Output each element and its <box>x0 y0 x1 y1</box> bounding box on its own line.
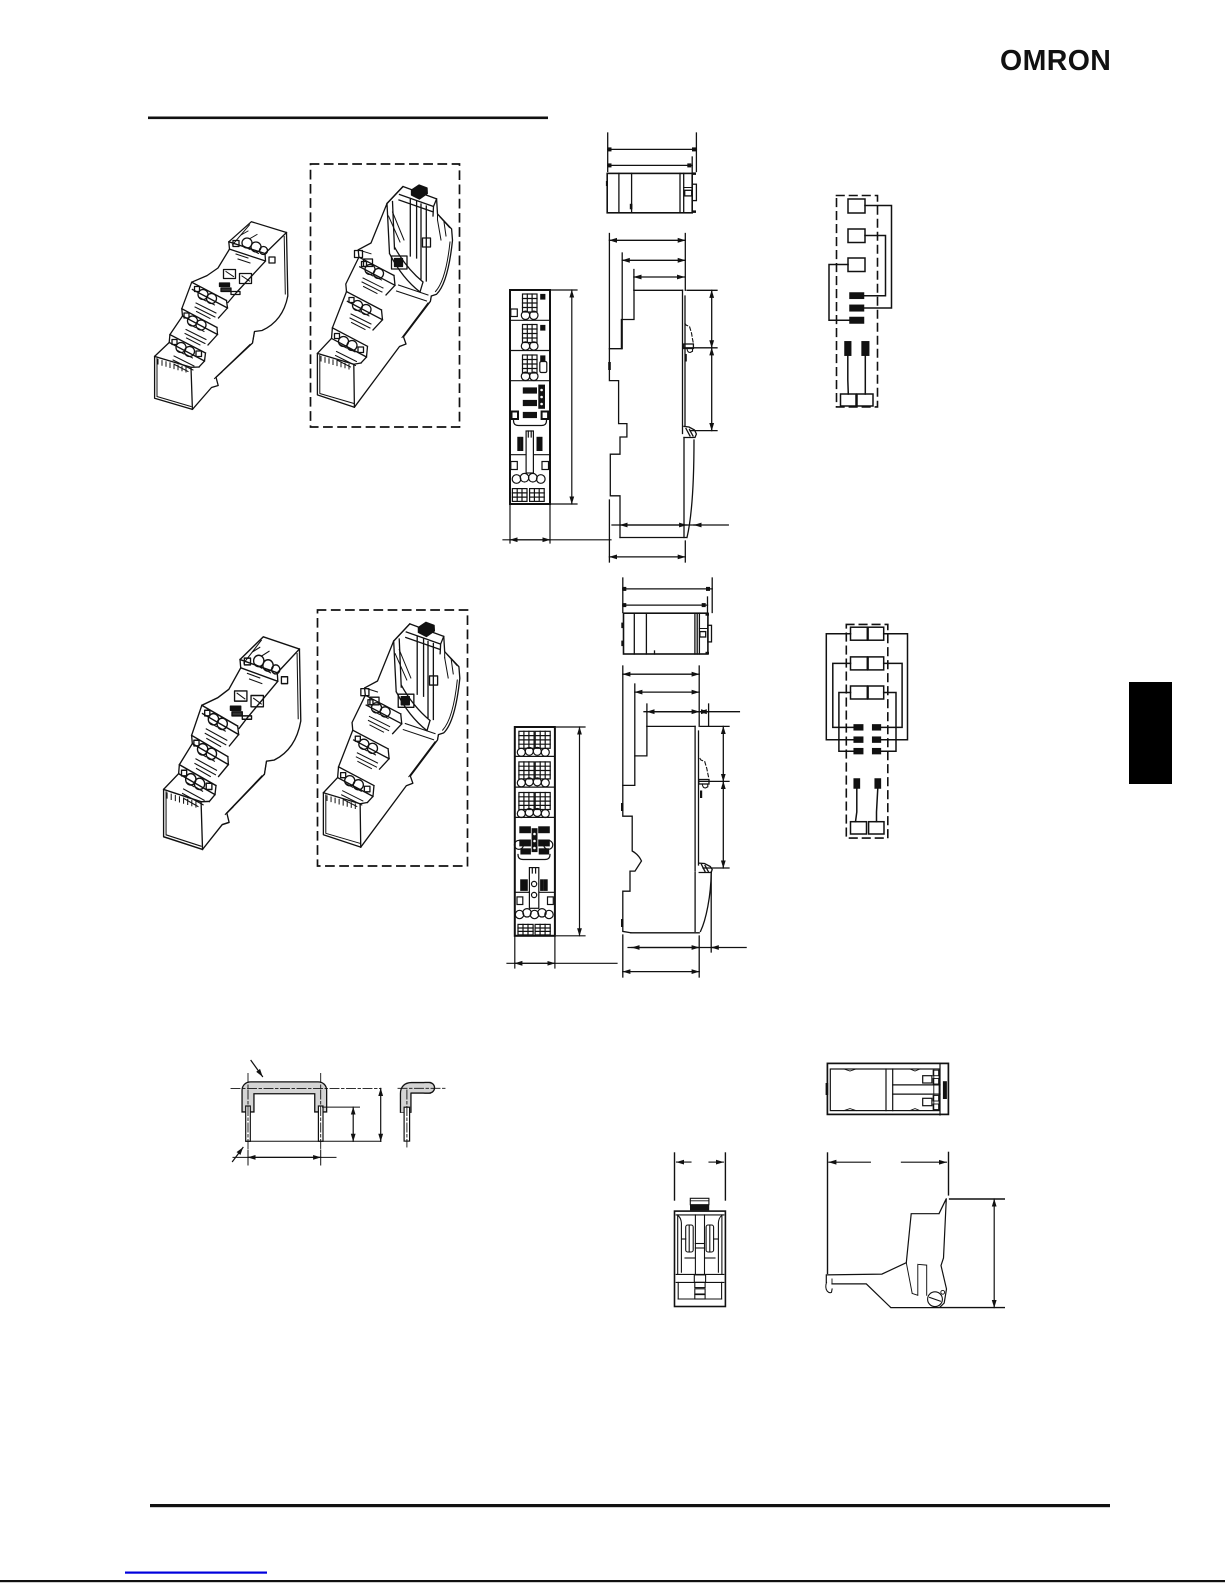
svg-text:OMRON: OMRON <box>1000 45 1111 77</box>
